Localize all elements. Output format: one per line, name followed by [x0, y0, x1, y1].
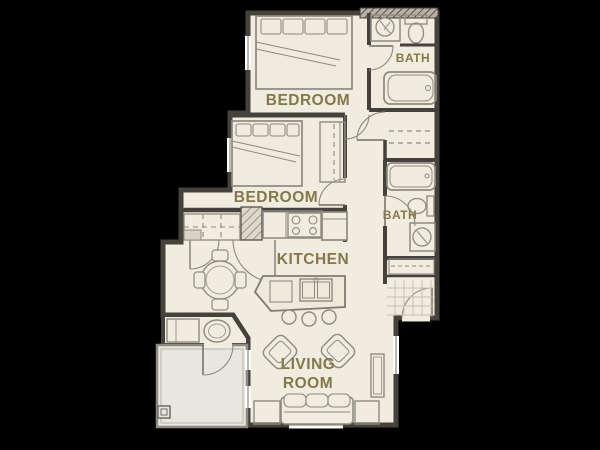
living-label-line2: ROOM	[283, 375, 333, 392]
plumbing-chase-hatch	[241, 207, 262, 240]
dining-chair	[235, 272, 246, 288]
patio-door-window-1	[245, 350, 251, 370]
bedroom1-bed-icon	[256, 16, 352, 89]
bar-stool-icons	[282, 310, 336, 326]
living-label-line1: LIVING	[281, 356, 336, 373]
floor-plan-image: BEDROOM BEDROOM BATH BATH KITCHEN LIVING…	[0, 0, 600, 450]
utility-fixtures	[167, 319, 230, 342]
kitchen-island	[255, 276, 345, 311]
patio-corner-post	[158, 406, 170, 418]
bedroom1-window	[245, 36, 251, 70]
living-window-right	[393, 336, 399, 374]
dining-chair	[212, 250, 228, 261]
patio-door-window-2	[245, 386, 251, 408]
bedroom2-label: BEDROOM	[234, 189, 318, 206]
dining-chair	[212, 299, 228, 310]
floor-plan-svg: BEDROOM BEDROOM BATH BATH KITCHEN LIVING…	[0, 0, 600, 450]
bedroom1-label: BEDROOM	[266, 92, 350, 109]
laundry-tub-icon	[204, 320, 230, 342]
kitchen-label: KITCHEN	[277, 251, 349, 268]
refrigerator-icon	[322, 212, 347, 240]
dining-chair	[194, 272, 205, 288]
bedroom2-bed-icon	[232, 121, 302, 186]
media-console-icon	[371, 354, 384, 397]
sofa-icon	[281, 394, 353, 424]
patio	[157, 345, 247, 427]
bath1-label: BATH	[396, 51, 430, 65]
bath2-label: BATH	[383, 208, 417, 222]
